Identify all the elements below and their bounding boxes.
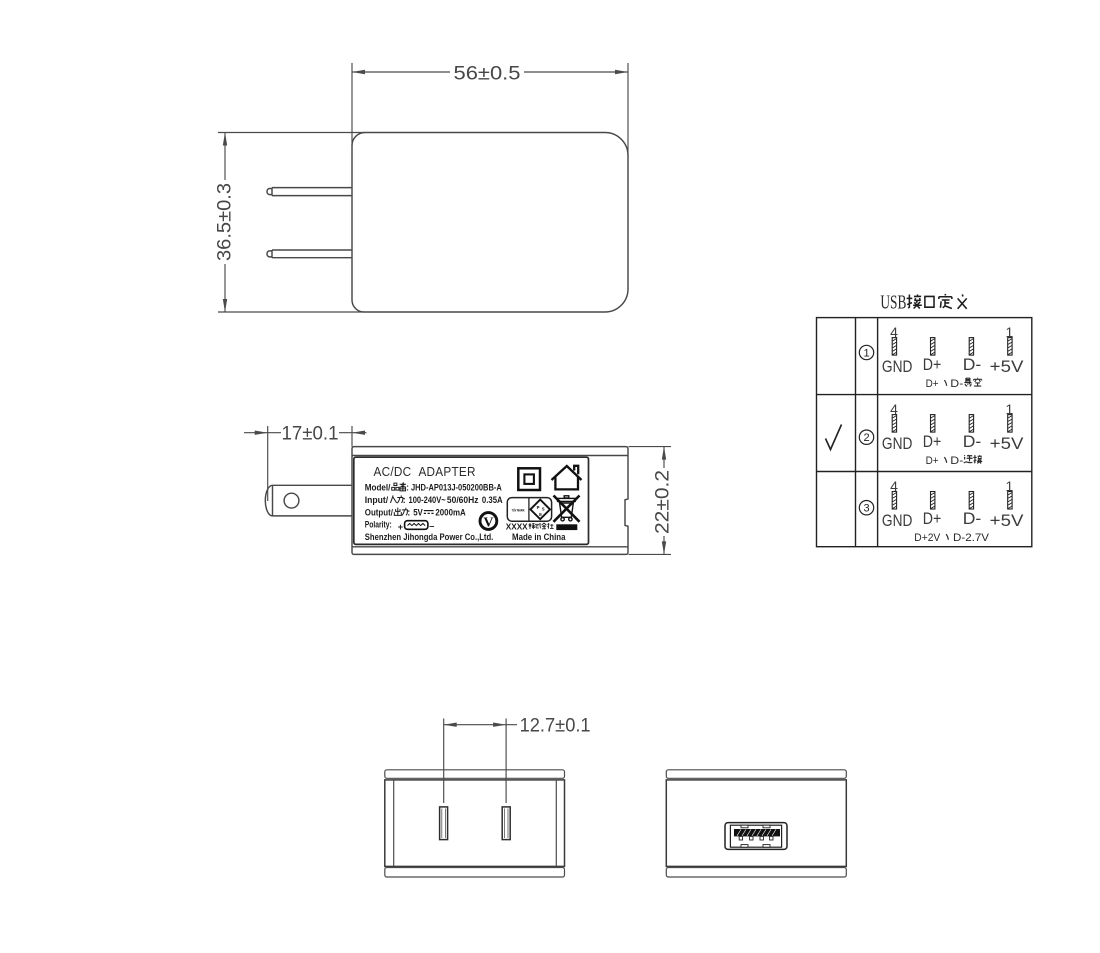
svg-text:100-240V~: 100-240V~ xyxy=(409,495,447,505)
svg-text:2000mA: 2000mA xyxy=(435,507,466,517)
svg-text:D+2V: D+2V xyxy=(914,532,941,544)
svg-text:V: V xyxy=(483,515,493,530)
svg-text:D+: D+ xyxy=(926,378,939,390)
svg-text:Made in China: Made in China xyxy=(512,532,566,542)
svg-text:5V: 5V xyxy=(413,507,423,517)
svg-text:TÜV MARK: TÜV MARK xyxy=(512,507,525,512)
svg-text:S: S xyxy=(542,507,545,512)
svg-text:USB: USB xyxy=(880,292,906,314)
svg-text:36.5±0.3: 36.5±0.3 xyxy=(214,183,236,261)
svg-text:3: 3 xyxy=(863,503,869,515)
svg-text:D-: D- xyxy=(950,378,963,390)
svg-text:D-2.7V: D-2.7V xyxy=(953,532,990,544)
svg-text:56±0.5: 56±0.5 xyxy=(454,63,521,85)
svg-text:D-: D- xyxy=(950,455,963,467)
svg-text:Input/: Input/ xyxy=(365,495,389,505)
svg-text:Model/: Model/ xyxy=(365,483,391,493)
svg-text:P: P xyxy=(537,505,540,510)
svg-text:Shenzhen Jihongda Power Co.,Lt: Shenzhen Jihongda Power Co.,Ltd. xyxy=(365,531,494,542)
svg-text:50/60Hz: 50/60Hz xyxy=(447,495,479,505)
svg-text:12.7±0.1: 12.7±0.1 xyxy=(520,715,591,737)
svg-text:0.35A: 0.35A xyxy=(482,495,503,505)
svg-text:AC/DC ADAPTER: AC/DC ADAPTER xyxy=(374,464,476,479)
svg-text:17±0.1: 17±0.1 xyxy=(282,423,339,445)
svg-text:22±0.2: 22±0.2 xyxy=(652,470,674,534)
svg-text:–: – xyxy=(429,521,434,531)
svg-text:XXXX: XXXX xyxy=(506,522,528,531)
svg-text:D+: D+ xyxy=(926,455,939,467)
svg-text:1: 1 xyxy=(863,347,869,359)
svg-text:Output/: Output/ xyxy=(365,507,393,517)
svg-text:2: 2 xyxy=(863,432,869,444)
svg-text:Polarity:: Polarity: xyxy=(365,519,392,529)
svg-text:: JHD-AP013J-050200BB-A: : JHD-AP013J-050200BB-A xyxy=(406,483,502,493)
svg-text:E: E xyxy=(539,512,542,517)
